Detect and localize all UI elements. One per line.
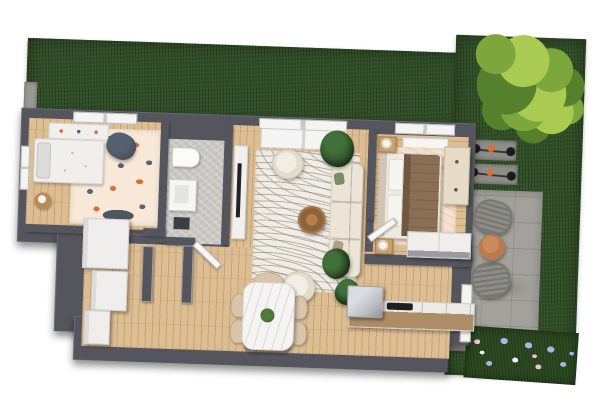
bed-pillow — [388, 158, 404, 191]
interior-wall — [143, 228, 165, 237]
cooktop — [387, 303, 413, 311]
bed-blanket — [401, 154, 440, 237]
tree-trunk — [513, 107, 526, 125]
kids-pillow — [36, 142, 51, 178]
wardrobe — [407, 231, 472, 259]
window — [73, 111, 137, 124]
window — [395, 123, 455, 136]
entry-cabinet — [83, 310, 110, 345]
floorplan-canvas — [0, 0, 600, 420]
window — [20, 146, 31, 190]
sofa-pillow — [333, 172, 345, 185]
bath-mat — [173, 217, 189, 230]
toilet — [172, 147, 201, 168]
hall-wall-stub — [141, 246, 154, 302]
dresser — [442, 146, 470, 205]
washbasin — [168, 179, 197, 212]
entry-cabinet — [82, 218, 130, 270]
kitchen-appliance — [346, 285, 383, 318]
hall-wall-stub — [181, 245, 194, 303]
flower-bed — [464, 325, 579, 385]
interior-wall — [165, 237, 195, 246]
floorplan-scene — [12, 34, 590, 398]
entry-cabinet — [90, 270, 127, 311]
